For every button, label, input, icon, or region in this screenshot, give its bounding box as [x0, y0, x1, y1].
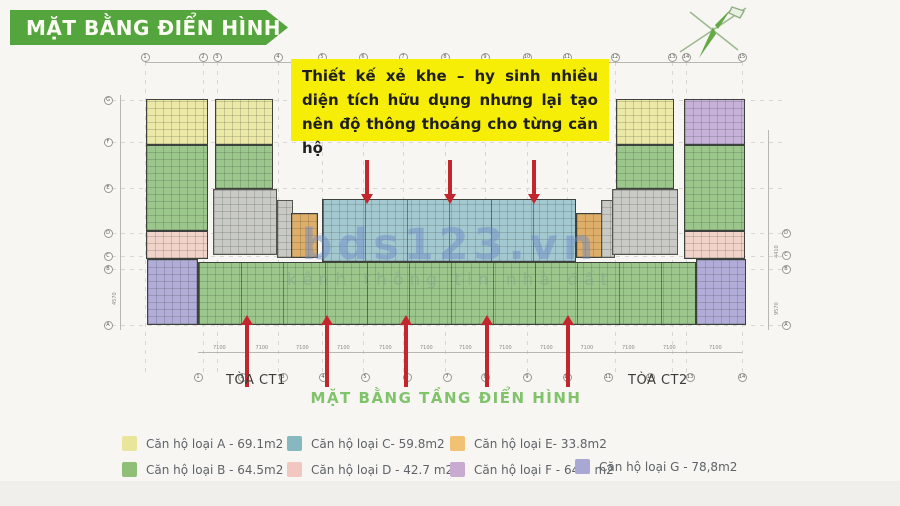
red-arrow-down [528, 160, 540, 204]
unit-block-core [213, 189, 277, 255]
legend-item-C: Căn hộ loại C- 59.8m2 [287, 436, 445, 451]
grid-bubble: A [104, 321, 113, 330]
legend-item-B: Căn hộ loại B - 64.5m2 [122, 462, 283, 477]
watermark-tagline: kênh thông tin nhà đất [280, 270, 620, 290]
annotation-text: Thiết kế xẻ khe – hy sinh nhiều diện tíc… [302, 67, 598, 157]
arrow-part [485, 325, 489, 387]
dimension-label: 7100 [256, 345, 269, 351]
unit-block-G [147, 259, 198, 325]
legend-swatch-A [122, 436, 137, 451]
grid-bubble: E [104, 184, 113, 193]
legend-swatch-F [450, 462, 465, 477]
dimension-line-left [120, 95, 121, 330]
grid-bubble: C [782, 251, 791, 260]
unit-block-A [146, 99, 208, 145]
red-arrow-down [361, 160, 373, 204]
red-arrow-up [562, 315, 574, 387]
dimension-line-right [768, 130, 769, 330]
annotation-callout: Thiết kế xẻ khe – hy sinh nhiều diện tíc… [291, 59, 609, 141]
grid-bubble: 2 [199, 53, 208, 62]
grid-bubble: 11 [604, 373, 613, 382]
grid-bubble: B [782, 265, 791, 274]
grid-bubble: 12 [611, 53, 620, 62]
dimension-label: 7100 [540, 345, 553, 351]
unit-block-F [684, 99, 745, 145]
grid-line-horizontal [112, 142, 782, 143]
page-title: MẶT BẰNG ĐIỂN HÌNH [10, 16, 281, 40]
legend-swatch-G [575, 459, 590, 474]
arrow-part [404, 325, 408, 387]
grid-bubble: B [104, 265, 113, 274]
legend-swatch-D [287, 462, 302, 477]
arrow-part [444, 194, 456, 204]
arrow-part [361, 194, 373, 204]
grid-bubble: 14 [738, 373, 747, 382]
arrow-part [321, 315, 333, 325]
legend-swatch-E [450, 436, 465, 451]
red-arrow-up [321, 315, 333, 387]
red-arrow-down [444, 160, 456, 204]
grid-bubble: 9 [523, 373, 532, 382]
dimension-label: 7100 [296, 345, 309, 351]
grid-bubble: C [104, 252, 113, 261]
arrow-part [241, 315, 253, 325]
title-banner: MẶT BẰNG ĐIỂN HÌNH [10, 10, 288, 45]
legend-item-A: Căn hộ loại A - 69.1m2 [122, 436, 283, 451]
arrow-part [325, 325, 329, 387]
grid-bubble: 1 [141, 53, 150, 62]
grid-bubble: 3 [213, 53, 222, 62]
legend-swatch-C [287, 436, 302, 451]
grid-bubble: 4 [274, 53, 283, 62]
unit-block-B [616, 145, 674, 189]
dimension-label: 7100 [581, 345, 594, 351]
unit-block-A [616, 99, 674, 145]
grid-bubble: F [104, 138, 113, 147]
grid-bubble: G [104, 96, 113, 105]
grid-bubble: 7 [443, 373, 452, 382]
dimension-label: 7100 [379, 345, 392, 351]
legend-label-B: Căn hộ loại B - 64.5m2 [146, 463, 283, 477]
legend-item-E: Căn hộ loại E- 33.8m2 [450, 436, 607, 451]
dimension-label: 7100 [337, 345, 350, 351]
dimension-label: 7100 [420, 345, 433, 351]
arrow-part [562, 315, 574, 325]
grid-bubble: 14 [682, 53, 691, 62]
grid-bubble: D [782, 229, 791, 238]
dimension-label-right: 4410 [774, 245, 780, 258]
dimension-label: 7100 [213, 345, 226, 351]
unit-block-G [696, 259, 746, 325]
unit-block-B [146, 145, 208, 231]
legend-item-D: Căn hộ loại D - 42.7 m2 [287, 462, 453, 477]
unit-block-B [215, 145, 273, 189]
legend-label-C: Căn hộ loại C- 59.8m2 [311, 437, 445, 451]
page: MẶT BẰNG ĐIỂN HÌNH Thiết kế xẻ khe – hy … [0, 0, 900, 506]
watermark: bds123.vn kênh thông tin nhà đất [280, 220, 620, 290]
dimension-label-right: 9570 [774, 302, 780, 315]
grid-bubble: D [104, 229, 113, 238]
arrow-part [481, 315, 493, 325]
dimension-label-left: 4570 [112, 292, 118, 305]
unit-block-D [146, 231, 208, 259]
arrow-part [532, 160, 536, 194]
unit-block-A [215, 99, 273, 145]
tower-ct1-label: TÒA CT1 [226, 373, 286, 388]
dimension-label: 7100 [459, 345, 472, 351]
legend-label-E: Căn hộ loại E- 33.8m2 [474, 437, 607, 451]
dimension-label: 7100 [499, 345, 512, 351]
legend-label-D: Căn hộ loại D - 42.7 m2 [311, 463, 453, 477]
legend-label-A: Căn hộ loại A - 69.1m2 [146, 437, 283, 451]
red-arrow-up [481, 315, 493, 387]
arrow-part [365, 160, 369, 194]
arrow-part [400, 315, 412, 325]
legend-swatch-B [122, 462, 137, 477]
tower-ct2-label: TÒA CT2 [628, 373, 688, 388]
legend-label-G: Căn hộ loại G - 78,8m2 [599, 460, 737, 474]
unit-block-D [684, 231, 745, 259]
arrow-part [528, 194, 540, 204]
red-arrow-up [400, 315, 412, 387]
grid-bubble: 13 [668, 53, 677, 62]
bottom-strip [0, 481, 900, 506]
unit-block-B [684, 145, 745, 231]
arrow-part [448, 160, 452, 194]
watermark-brand: bds123.vn [280, 220, 620, 270]
grid-bubble: 5 [361, 373, 370, 382]
dimension-label: 7100 [663, 345, 676, 351]
dimension-label: 7100 [622, 345, 635, 351]
legend-item-G: Căn hộ loại G - 78,8m2 [575, 459, 737, 474]
dimension-label: 7100 [709, 345, 722, 351]
dimension-line-bottom [198, 352, 742, 353]
grid-line-horizontal [112, 325, 782, 326]
grid-bubble: A [782, 321, 791, 330]
grid-bubble: 15 [738, 53, 747, 62]
grid-bubble: 1 [194, 373, 203, 382]
plan-caption: MẶT BẰNG TẦNG ĐIỂN HÌNH [300, 389, 592, 407]
arrow-part [566, 325, 570, 387]
unit-block-core [612, 189, 678, 255]
